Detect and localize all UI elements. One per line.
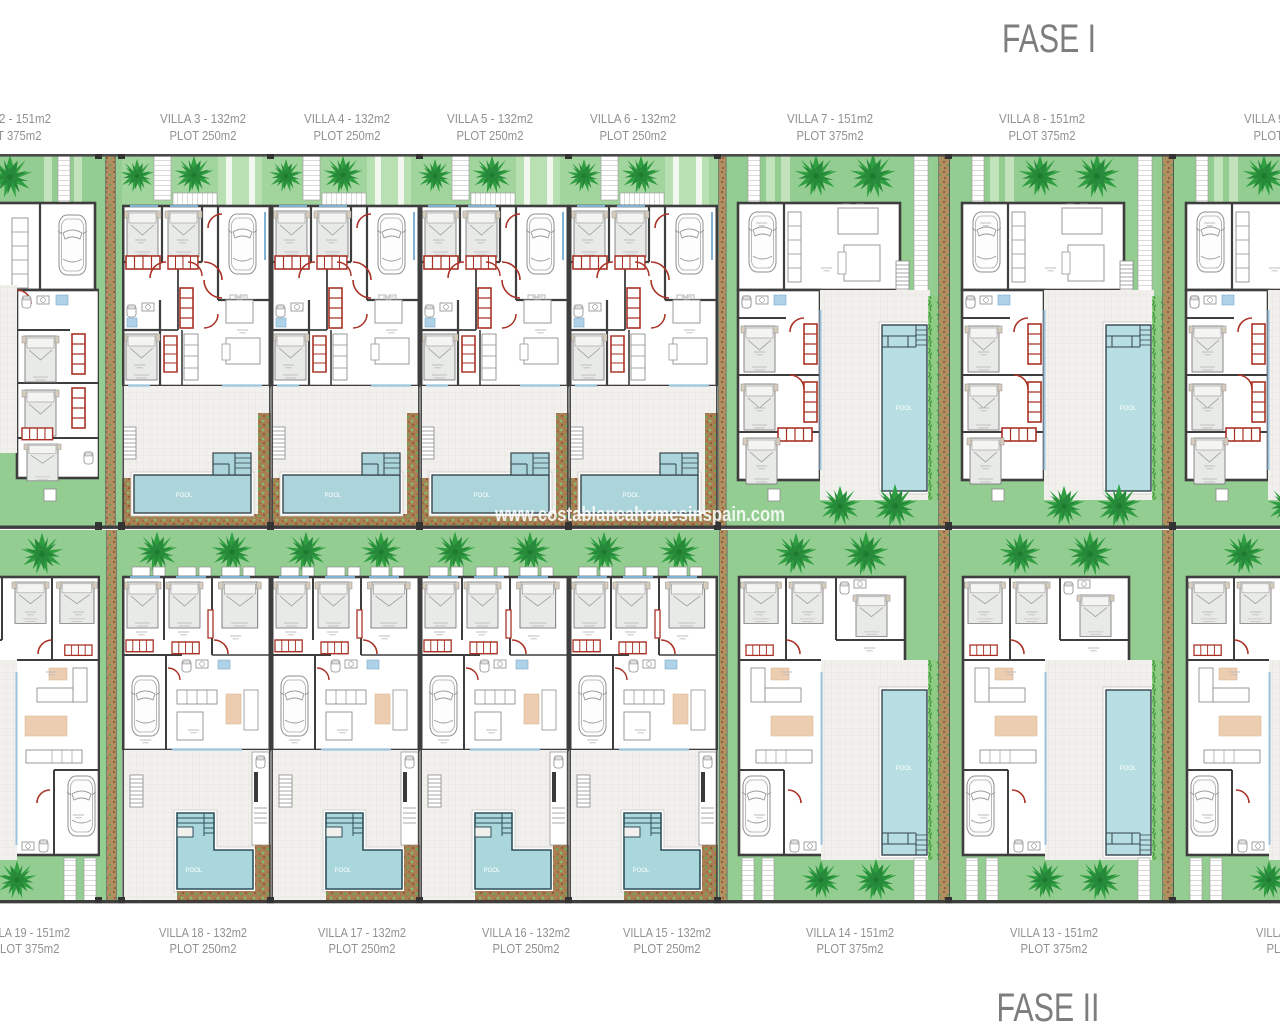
svg-text:VILLA 18 - 132m2: VILLA 18 - 132m2 [159,925,247,940]
svg-text:PLOT 250m2: PLOT 250m2 [170,941,237,956]
svg-text:VILLA 6 - 132m2: VILLA 6 - 132m2 [590,111,676,126]
svg-text:PLOT 250m2: PLOT 250m2 [170,128,237,143]
svg-text:PLOT 375m2: PLOT 375m2 [817,941,884,956]
svg-text:PLOT 375m2: PLOT 375m2 [1267,941,1280,956]
svg-text:VILLA 17 - 132m2: VILLA 17 - 132m2 [318,925,406,940]
svg-text:VILLA 7 - 151m2: VILLA 7 - 151m2 [787,111,873,126]
svg-text:FASE I: FASE I [1002,17,1096,61]
svg-text:VILLA 9 - 151m2: VILLA 9 - 151m2 [1244,111,1280,126]
svg-text:www.costablancahomesinspain.co: www.costablancahomesinspain.com [494,504,785,526]
svg-text:PLOT 375m2: PLOT 375m2 [1021,941,1088,956]
svg-text:PLOT 250m2: PLOT 250m2 [493,941,560,956]
svg-text:VILLA 4 - 132m2: VILLA 4 - 132m2 [304,111,390,126]
svg-text:VILLA 16 - 132m2: VILLA 16 - 132m2 [482,925,570,940]
svg-text:VILLA 5 - 132m2: VILLA 5 - 132m2 [447,111,533,126]
svg-text:PLOT 250m2: PLOT 250m2 [314,128,381,143]
svg-text:VILLA 3 - 132m2: VILLA 3 - 132m2 [160,111,246,126]
svg-text:VILLA 12 - 151m2: VILLA 12 - 151m2 [1256,925,1280,940]
svg-text:PLOT 250m2: PLOT 250m2 [329,941,396,956]
svg-text:FASE II: FASE II [997,986,1100,1024]
svg-text:PLOT 250m2: PLOT 250m2 [457,128,524,143]
svg-text:VILLA 15 - 132m2: VILLA 15 - 132m2 [623,925,711,940]
svg-text:PLOT 375m2: PLOT 375m2 [1254,128,1280,143]
svg-text:PLOT 375m2: PLOT 375m2 [797,128,864,143]
svg-text:VILLA 8 - 151m2: VILLA 8 - 151m2 [999,111,1085,126]
svg-text:VILLA 2 - 151m2: VILLA 2 - 151m2 [0,111,51,126]
svg-text:PLOT 375m2: PLOT 375m2 [1009,128,1076,143]
svg-text:PLOT 250m2: PLOT 250m2 [600,128,667,143]
svg-text:PLOT 375m2: PLOT 375m2 [0,941,60,956]
svg-text:PLOT 250m2: PLOT 250m2 [634,941,701,956]
svg-text:VILLA 19 - 151m2: VILLA 19 - 151m2 [0,925,70,940]
svg-text:VILLA 13 - 151m2: VILLA 13 - 151m2 [1010,925,1098,940]
svg-text:PLOT 375m2: PLOT 375m2 [0,128,42,143]
svg-text:VILLA 14 - 151m2: VILLA 14 - 151m2 [806,925,894,940]
